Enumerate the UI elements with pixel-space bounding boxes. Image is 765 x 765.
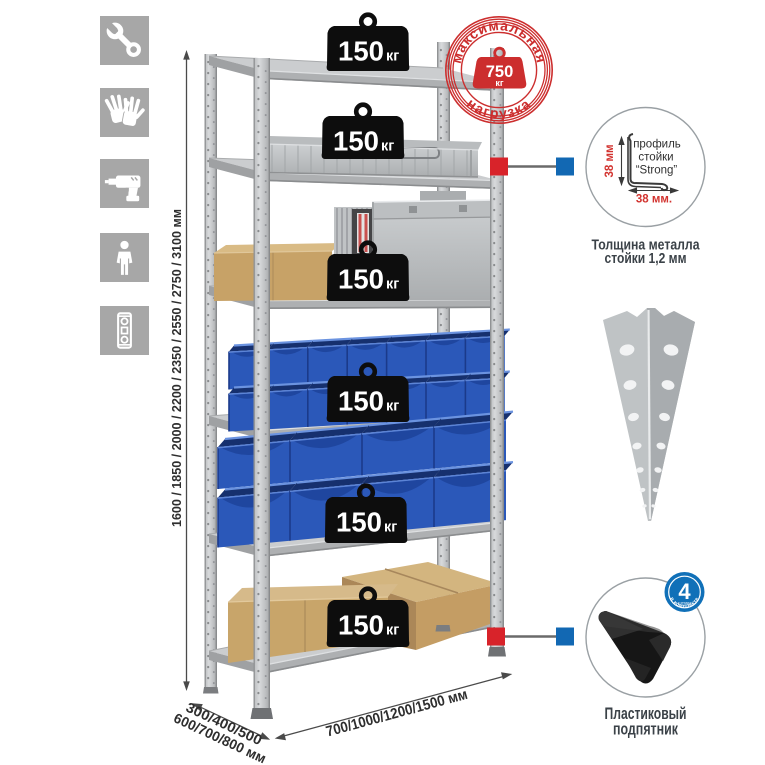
svg-text:кг: кг (386, 623, 399, 639)
svg-text:150: 150 (338, 264, 384, 295)
svg-text:кг: кг (384, 520, 397, 536)
svg-text:кг: кг (381, 139, 394, 155)
svg-text:150: 150 (336, 507, 382, 538)
svg-text:кг: кг (386, 49, 399, 65)
svg-text:стойки: стойки (638, 152, 673, 164)
svg-text:стойки 1,2 мм: стойки 1,2 мм (605, 250, 687, 267)
svg-text:1600 / 1850 / 2000 / 2200 / 23: 1600 / 1850 / 2000 / 2200 / 2350 / 2550 … (169, 209, 184, 527)
svg-text:“Strong”: “Strong” (636, 165, 678, 177)
svg-text:кг: кг (386, 399, 399, 415)
svg-text:150: 150 (338, 610, 384, 641)
svg-text:подпятник: подпятник (613, 721, 679, 739)
svg-text:кг: кг (495, 78, 504, 88)
svg-text:150: 150 (333, 126, 379, 157)
svg-text:150: 150 (338, 386, 384, 417)
svg-text:кг: кг (386, 277, 399, 293)
svg-text:профиль: профиль (633, 139, 681, 151)
svg-text:150: 150 (338, 36, 384, 67)
svg-text:38 мм.: 38 мм. (636, 194, 672, 206)
svg-text:38 мм: 38 мм (604, 144, 616, 177)
